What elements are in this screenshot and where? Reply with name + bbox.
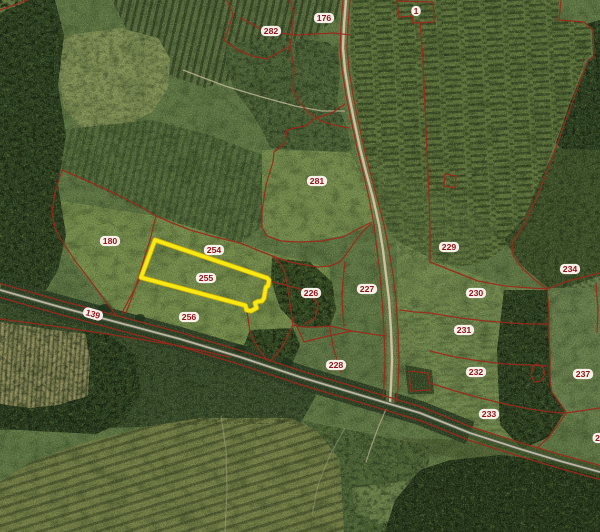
svg-text:232: 232 [469,367,484,377]
svg-text:229: 229 [442,242,457,252]
svg-text:176: 176 [317,13,332,23]
svg-text:233: 233 [482,409,497,419]
svg-text:1: 1 [414,6,419,16]
svg-text:234: 234 [563,264,578,274]
svg-text:256: 256 [182,312,197,322]
svg-text:227: 227 [360,284,375,294]
svg-text:226: 226 [304,288,319,298]
svg-text:255: 255 [199,273,214,283]
svg-text:231: 231 [457,325,472,335]
svg-text:180: 180 [103,236,118,246]
svg-text:230: 230 [469,288,484,298]
svg-text:237: 237 [576,369,591,379]
svg-text:282: 282 [264,26,279,36]
svg-text:23: 23 [595,433,600,443]
svg-text:281: 281 [310,176,325,186]
svg-text:254: 254 [207,245,222,255]
svg-text:228: 228 [329,360,344,370]
